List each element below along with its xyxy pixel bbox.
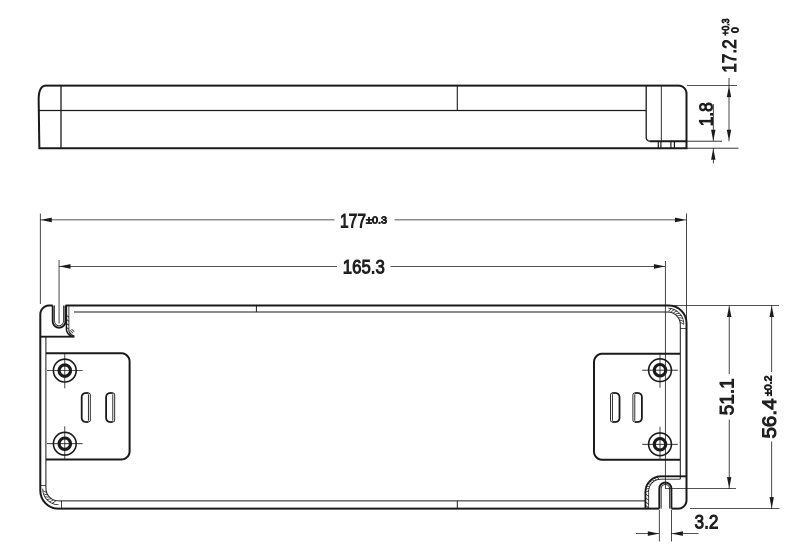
svg-text:±0.3: ±0.3	[366, 214, 387, 226]
svg-text:±0.2: ±0.2	[762, 375, 774, 396]
svg-text:165.3: 165.3	[343, 257, 385, 279]
svg-text:177: 177	[340, 210, 366, 232]
svg-text:0: 0	[730, 27, 742, 33]
svg-text:56.4: 56.4	[759, 398, 781, 438]
svg-text:3.2: 3.2	[695, 512, 719, 534]
svg-text:51.1: 51.1	[717, 378, 739, 415]
svg-text:1.8: 1.8	[696, 102, 717, 126]
svg-text:17.2: 17.2	[719, 39, 741, 73]
